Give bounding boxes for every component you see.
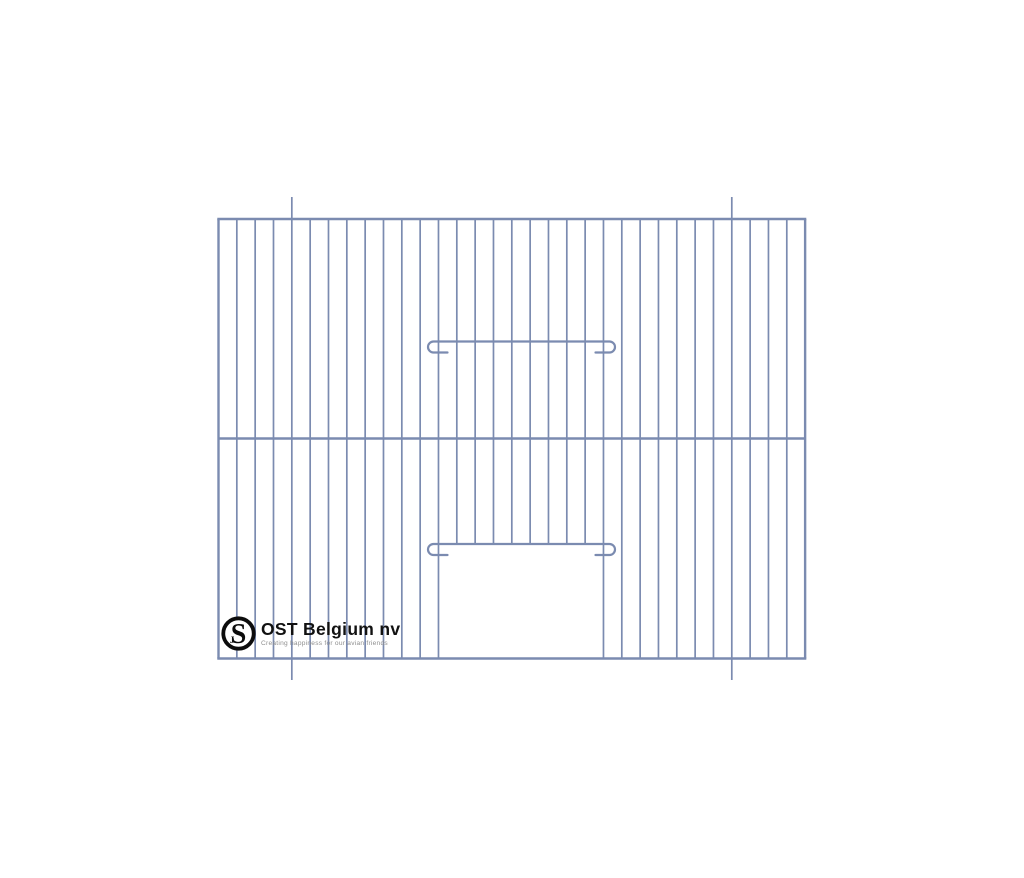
logo-letter-j: J [230,635,235,645]
brand-tagline: Creating happiness for our avian friends [261,640,400,647]
cage-front-panel-drawing [0,0,1024,878]
brand-logo: S J OST Belgium nv Creating happiness fo… [219,614,400,653]
brand-logo-mark: S J [219,614,258,653]
product-image-canvas: S J OST Belgium nv Creating happiness fo… [0,0,1024,878]
brand-logo-text: OST Belgium nv Creating happiness for ou… [261,620,400,647]
door-bottom-slide-bar [428,544,615,555]
brand-name: OST Belgium nv [261,620,400,638]
